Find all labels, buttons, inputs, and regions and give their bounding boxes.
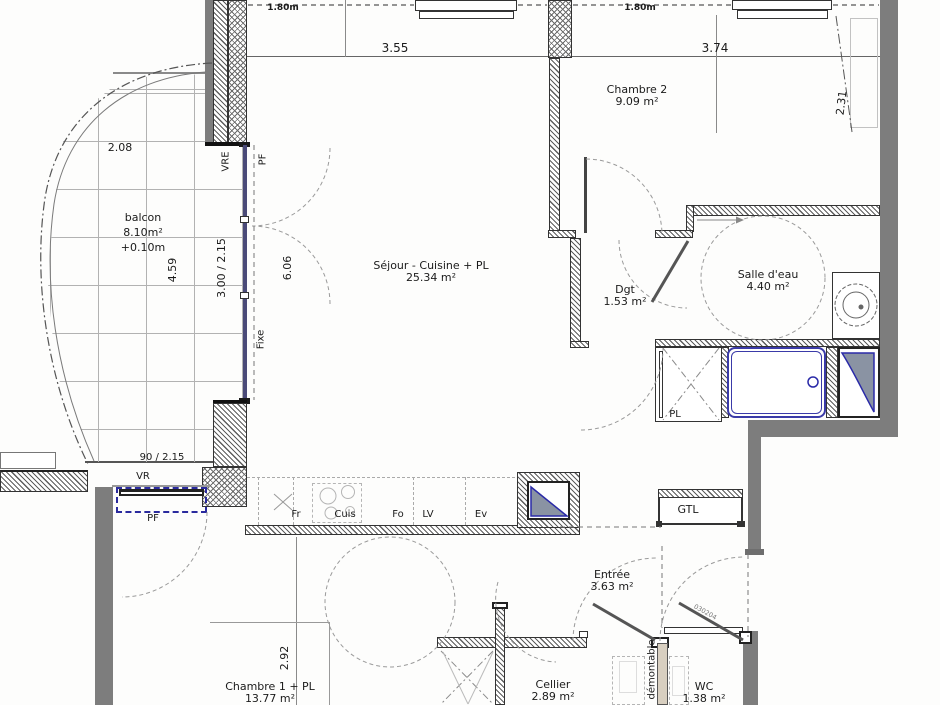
placard-chambre2 (850, 18, 878, 128)
room-area: 13.77 m² (190, 693, 350, 705)
room-name: Séjour - Cuisine + PL (351, 260, 511, 272)
window-sejour-top (415, 0, 517, 11)
duct-box-salledeau (838, 347, 880, 418)
wall-exterior-bottom-left (95, 487, 113, 705)
wall-chambre2-cap (548, 230, 576, 238)
wall-exterior-foot (745, 549, 764, 555)
dim-231: 2.31 (832, 72, 851, 133)
kitchen-sep-3 (413, 477, 414, 525)
window-chambre2-top (732, 0, 832, 10)
wall-salledeau-bottom (655, 339, 880, 347)
room-area: 8.10m² (63, 225, 223, 240)
mark-ev: Ev (468, 509, 494, 520)
room-area: 4.40 m² (688, 281, 848, 293)
room-name: balcon (63, 210, 223, 225)
room-area: 3.63 m² (532, 581, 692, 593)
room-label-chambre2: Chambre 2 9.09 m² (557, 84, 717, 108)
mark-pf-bottom: PF (140, 513, 166, 524)
wall-pillar-right (228, 0, 247, 145)
kitchen-counter-top-line (247, 477, 520, 478)
dim-292: 2.92 (279, 628, 291, 688)
wall-dgt-cap (570, 341, 589, 348)
room-name: Entrée (532, 569, 692, 581)
mark-vr: VR (130, 471, 156, 482)
wall-salledeau-stub-h (655, 230, 693, 238)
wall-vr-right (213, 403, 247, 467)
room-label-cellier: Cellier 2.89 m² (473, 679, 633, 703)
room-label-sejour: Séjour - Cuisine + PL 25.34 m² (351, 260, 511, 284)
window-bay-tick-1 (240, 216, 249, 223)
wall-cellier-cap-right (579, 631, 588, 638)
partition-wc-top (664, 627, 743, 634)
mark-demontable: démontable (647, 625, 658, 705)
mark-cuis: Cuis (330, 509, 360, 520)
shower-tray-inner (731, 351, 822, 414)
window-vr-shutter-box (116, 487, 207, 513)
wall-exterior-mid (748, 437, 761, 549)
dim-355: 3.55 (370, 42, 420, 54)
kitchen-sep-4 (465, 477, 466, 525)
room-label-dgt: Dgt 1.53 m² (545, 284, 705, 308)
dim-300-215: 3.00 / 2.15 (216, 228, 228, 308)
dim-extension-line-374 (716, 15, 717, 133)
dim-208: 2.08 (95, 142, 145, 154)
sliding-door-arrow (697, 217, 744, 224)
balcony-top-edge (113, 72, 213, 74)
wall-gtl-top (658, 489, 743, 498)
dim-180-left: 1.80m (258, 3, 308, 14)
room-area: 2.89 m² (473, 691, 633, 703)
room-name: Dgt (545, 284, 705, 296)
wall-salledeau-stub-v (686, 205, 694, 232)
mark-fr: Fr (283, 509, 309, 520)
wall-pillar-left (213, 0, 228, 145)
room-name: Salle d'eau (688, 269, 848, 281)
wall-cellier-cap-top (492, 602, 508, 609)
room-name: Cellier (473, 679, 633, 691)
gtl-foot-right (737, 521, 745, 527)
room-label-entree: Entrée 3.63 m² (532, 569, 692, 593)
mark-door-code: 030204 (686, 600, 724, 626)
wall-exterior-right (880, 0, 898, 437)
floor-plan: balcon 8.10m² +0.10m Séjour - Cuisine + … (0, 0, 940, 705)
dim-459: 4.59 (167, 240, 179, 300)
mark-vre: VRE (221, 142, 232, 182)
room-area: 1.53 m² (545, 296, 705, 308)
window-bay-glazing (243, 145, 247, 400)
wall-vr-corner (202, 467, 247, 507)
dim-90-215: 90 / 2.15 (127, 452, 197, 463)
mark-fo: Fo (385, 509, 411, 520)
kitchen-sep-1 (258, 477, 259, 525)
wall-shower-duct (826, 347, 838, 418)
window-sejour-top-sill (419, 11, 514, 19)
room-name: Chambre 1 + PL (190, 681, 350, 693)
neighbor-slab (0, 452, 56, 469)
dim-extension-line-355 (345, 0, 346, 57)
room-name: Chambre 2 (557, 84, 717, 96)
room-label-salle-deau: Salle d'eau 4.40 m² (688, 269, 848, 293)
door-leaf-chambre2 (584, 157, 587, 233)
room-label-balcon: balcon 8.10m² +0.10m (63, 210, 223, 255)
room-area: 9.09 m² (557, 96, 717, 108)
dim-180-right: 1.80m (615, 3, 665, 14)
room-level: +0.10m (63, 240, 223, 255)
wall-cellier-horizontal (437, 637, 587, 648)
duct-box-kitchen (527, 481, 570, 520)
wall-left-band (0, 470, 88, 492)
door-frame-wc (739, 631, 752, 644)
dim-606: 6.06 (282, 238, 294, 298)
mark-fixe: Fixe (256, 310, 267, 370)
wall-exterior-step (748, 420, 898, 437)
window-chambre2-top-sill (737, 10, 828, 19)
dim-374: 3.74 (690, 42, 740, 54)
closet-pl-sliding-door (659, 351, 663, 418)
wall-pillar-edge (205, 0, 213, 145)
mark-gtl: GTL (668, 504, 708, 515)
mark-pl: PL (662, 409, 688, 420)
wall-chambre2-pillar (548, 0, 572, 58)
window-bay-tick-2 (240, 292, 249, 299)
mark-pf-top: PF (258, 140, 269, 180)
room-label-chambre1: Chambre 1 + PL 13.77 m² (190, 681, 350, 705)
fridge-x-mark (274, 494, 292, 510)
room-area: 25.34 m² (351, 272, 511, 284)
wall-salledeau-top (692, 205, 880, 216)
mark-lv: LV (415, 509, 441, 520)
gtl-foot-left (656, 521, 662, 527)
